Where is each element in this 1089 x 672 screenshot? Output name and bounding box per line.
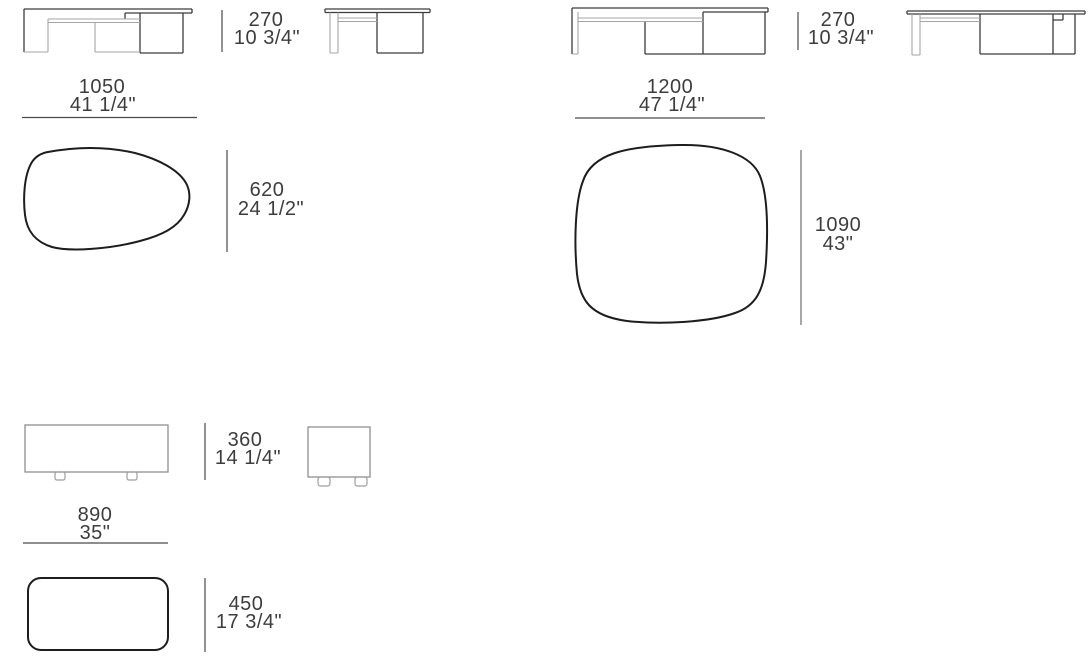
ottoman-side-foot-left [318,477,330,486]
table-a-front-outline [24,9,192,53]
ottoman-top-view: 450 17 3/4" [28,578,282,652]
table-b-width-dimension: 1200 47 1/4" [575,76,765,118]
table-b-top-outline [575,145,767,323]
ottoman-side-foot-right [355,477,367,486]
table-a-width-dimension: 1050 41 1/4" [22,76,197,118]
ottoman-front-view [25,425,168,480]
table-b-side-inner-lines [912,14,980,55]
table-b-depth-in-label: 43" [823,233,854,255]
ottoman-side-body [308,427,370,477]
table-a-width-in-label: 41 1/4" [70,94,136,116]
ottoman-top-outline [28,578,168,650]
table-a-front-view [24,9,192,53]
table-a-side-view [325,9,430,53]
ottoman-width-dimension: 890 35" [23,504,168,544]
table-b-width-in-label: 47 1/4" [639,94,705,116]
drawing-sheet: 270 10 3/4" 1050 41 1/4" 620 24 1/2" 270… [0,0,1089,672]
ottoman-height-in-label: 14 1/4" [215,447,281,469]
table-b-side-view [907,11,1085,55]
ottoman-front-body [25,425,168,472]
table-a-height-in-label: 10 3/4" [234,27,300,49]
table-b-front-inner-lines [572,12,703,54]
table-a-side-inner-lines [330,13,377,54]
table-a-side-outline [325,9,430,53]
ottoman-side-view [308,427,370,486]
table-a-height-dimension: 270 10 3/4" [222,9,300,52]
table-b-front-outline [572,8,768,54]
dimension-drawing-canvas: 270 10 3/4" 1050 41 1/4" 620 24 1/2" 270… [0,0,1089,672]
table-b-height-in-label: 10 3/4" [808,27,874,49]
table-b-top-view: 1090 43" [575,145,861,325]
ottoman-depth-in-label: 17 3/4" [216,611,282,633]
ottoman-width-in-label: 35" [80,522,111,544]
ottoman-front-foot-right [127,472,137,480]
table-a-depth-in-label: 24 1/2" [238,198,304,220]
table-b-front-view [572,8,768,54]
ottoman-height-dimension: 360 14 1/4" [205,423,281,480]
ottoman-front-foot-left [55,472,65,480]
table-b-height-dimension: 270 10 3/4" [798,9,874,50]
table-a-front-inner-lines [24,19,140,52]
table-a-top-outline [24,148,189,249]
table-a-top-view: 620 24 1/2" [24,148,304,252]
